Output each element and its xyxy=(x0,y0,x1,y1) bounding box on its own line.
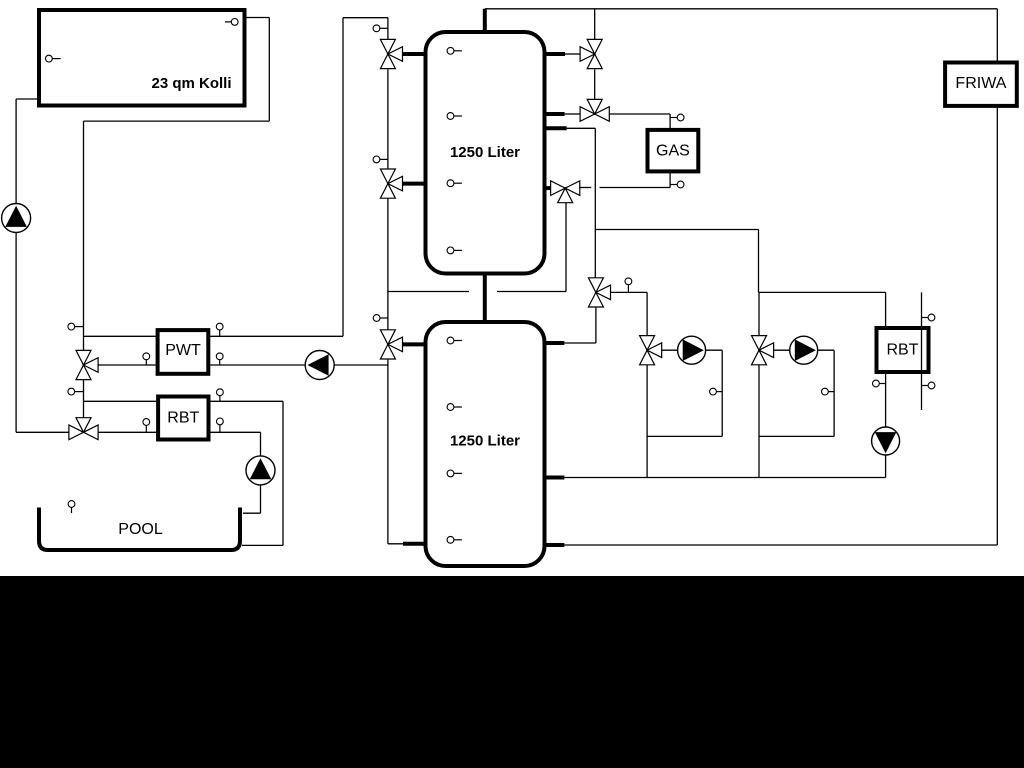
svg-text:POOL: POOL xyxy=(118,521,163,538)
svg-text:RBT: RBT xyxy=(887,341,919,358)
svg-text:GAS: GAS xyxy=(656,143,690,160)
svg-text:FRIWA: FRIWA xyxy=(955,75,1006,92)
svg-text:1250 Liter: 1250 Liter xyxy=(450,432,520,449)
svg-text:PWT: PWT xyxy=(165,342,201,359)
svg-text:23 qm Kolli: 23 qm Kolli xyxy=(151,75,231,92)
svg-text:1250 Liter: 1250 Liter xyxy=(450,144,520,161)
svg-text:RBT: RBT xyxy=(167,409,199,426)
